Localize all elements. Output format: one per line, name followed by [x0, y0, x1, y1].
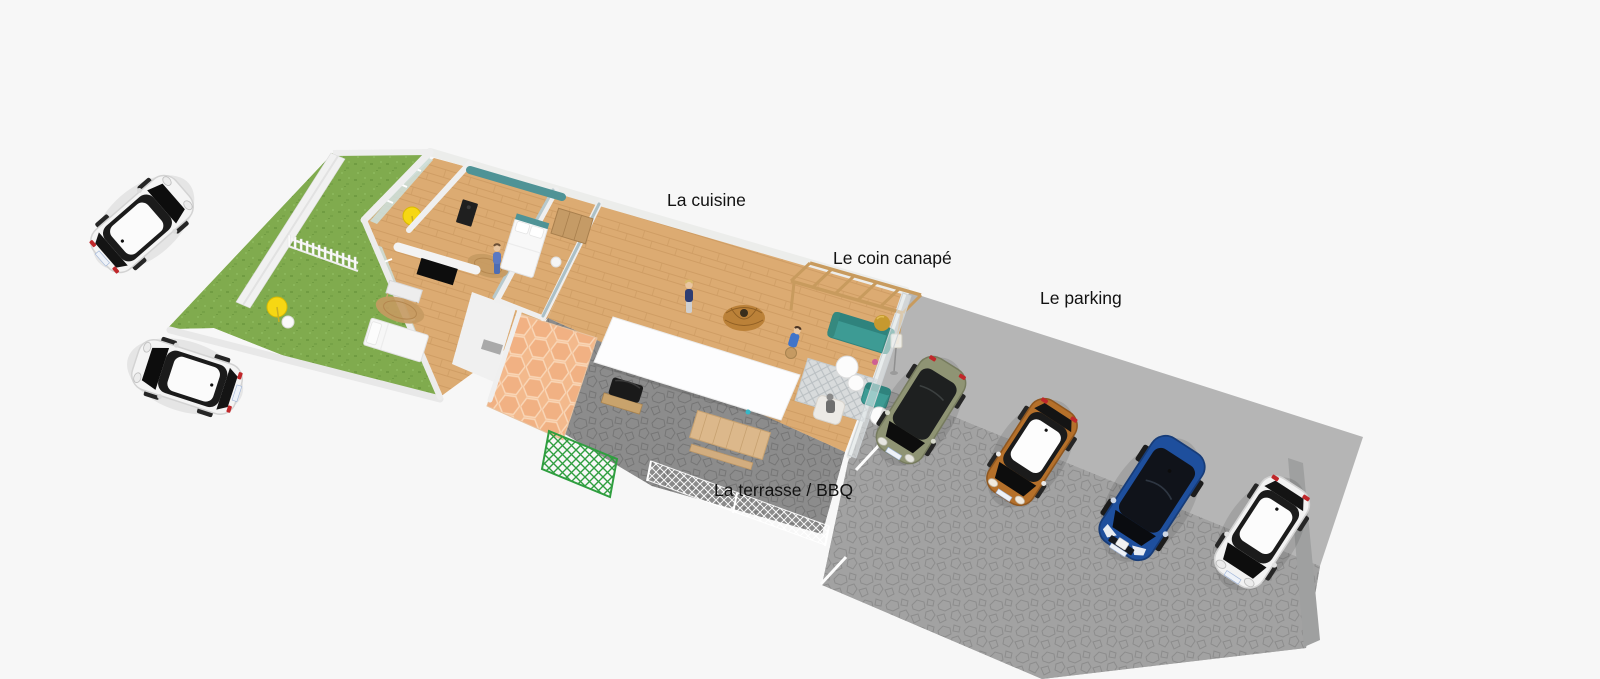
- nightstand: [551, 257, 561, 267]
- garden-side-table: [282, 316, 294, 328]
- floorplan-scene: La cuisine Le coin canapé Le parking La …: [0, 0, 1600, 679]
- label-sofa-corner: Le coin canapé: [833, 248, 952, 268]
- flowers: [872, 359, 878, 365]
- person-kitchen: [685, 281, 693, 313]
- gold-pendant-lamp: [874, 315, 890, 331]
- label-parking: Le parking: [1040, 288, 1122, 308]
- label-terrace-bbq: La terrasse / BBQ: [714, 480, 853, 500]
- floorplan-3d-viewport[interactable]: La cuisine Le coin canapé Le parking La …: [0, 0, 1600, 679]
- coffee-table: [848, 375, 864, 391]
- garden-north-wall: [333, 152, 430, 153]
- label-kitchen: La cuisine: [667, 190, 746, 210]
- wicker-pendant-lamp: [723, 305, 765, 331]
- person-bedroom: [493, 244, 501, 274]
